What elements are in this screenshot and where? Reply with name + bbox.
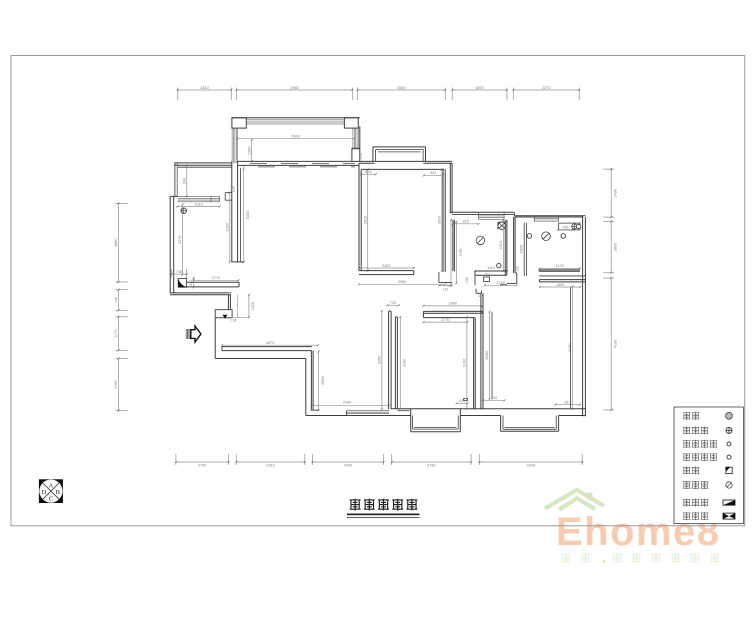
svg-text:120: 120 xyxy=(447,284,453,288)
svg-text:1790: 1790 xyxy=(198,464,206,468)
svg-text:2805: 2805 xyxy=(613,243,617,251)
svg-text:1890: 1890 xyxy=(475,86,483,90)
svg-text:811: 811 xyxy=(430,171,436,175)
svg-text:824: 824 xyxy=(365,170,371,174)
svg-text:B: B xyxy=(56,489,61,496)
svg-text:1020: 1020 xyxy=(251,302,255,310)
svg-text:131: 131 xyxy=(359,153,363,159)
svg-text:1.60: 1.60 xyxy=(230,319,237,323)
svg-text:261: 261 xyxy=(189,279,193,285)
svg-text:2430: 2430 xyxy=(343,401,351,405)
svg-text:2760: 2760 xyxy=(114,380,118,388)
svg-text:3280: 3280 xyxy=(485,351,489,359)
svg-text:730: 730 xyxy=(491,396,497,400)
svg-text:140: 140 xyxy=(114,297,118,303)
svg-text:2430: 2430 xyxy=(344,464,352,468)
svg-text:817: 817 xyxy=(565,401,571,405)
svg-text:3240: 3240 xyxy=(527,464,535,468)
svg-text:2420: 2420 xyxy=(382,264,390,268)
svg-text:2960: 2960 xyxy=(398,280,406,284)
svg-text:2275: 2275 xyxy=(178,235,182,243)
svg-text:2670: 2670 xyxy=(438,216,442,224)
svg-text:D: D xyxy=(42,489,47,496)
svg-text:1110: 1110 xyxy=(487,266,494,270)
svg-text:2805: 2805 xyxy=(520,245,524,253)
svg-text:120: 120 xyxy=(443,288,449,292)
svg-text:1910: 1910 xyxy=(499,241,503,249)
svg-text:1390: 1390 xyxy=(556,283,564,287)
svg-text:2600: 2600 xyxy=(397,86,405,90)
svg-text:3030: 3030 xyxy=(246,211,250,219)
svg-text:130: 130 xyxy=(232,186,236,192)
svg-text:425: 425 xyxy=(459,399,465,403)
svg-text:2000: 2000 xyxy=(321,376,325,384)
svg-text:4130: 4130 xyxy=(613,340,617,348)
svg-text:A: A xyxy=(49,483,54,490)
svg-text:2673: 2673 xyxy=(266,341,274,345)
svg-text:3100: 3100 xyxy=(463,359,467,367)
svg-text:740: 740 xyxy=(562,225,568,229)
svg-text:990: 990 xyxy=(182,178,186,184)
svg-text:2610: 2610 xyxy=(363,216,367,224)
svg-text:1810: 1810 xyxy=(200,86,208,90)
svg-text:2960: 2960 xyxy=(290,86,298,90)
svg-text:2270: 2270 xyxy=(542,86,550,90)
svg-text:135: 135 xyxy=(465,277,469,283)
svg-text:915: 915 xyxy=(463,220,469,224)
svg-text:2000: 2000 xyxy=(449,302,457,306)
svg-text:2730: 2730 xyxy=(427,464,435,468)
svg-text:1280: 1280 xyxy=(247,146,251,154)
svg-text:1010: 1010 xyxy=(194,202,202,206)
svg-text:1770: 1770 xyxy=(441,318,449,322)
svg-text:748: 748 xyxy=(176,270,182,274)
svg-text:2880: 2880 xyxy=(114,238,118,246)
svg-text:725: 725 xyxy=(390,301,396,305)
svg-text:110: 110 xyxy=(515,266,519,272)
svg-text:1170: 1170 xyxy=(114,329,118,337)
svg-text:1770: 1770 xyxy=(212,276,220,280)
svg-text:C: C xyxy=(49,496,53,503)
svg-text:2310: 2310 xyxy=(266,464,274,468)
svg-text:2960: 2960 xyxy=(291,135,299,139)
svg-text:3390: 3390 xyxy=(378,356,382,364)
svg-text:2000: 2000 xyxy=(225,223,229,231)
svg-text:3100: 3100 xyxy=(403,359,407,367)
svg-text:120: 120 xyxy=(478,294,484,298)
svg-text:110: 110 xyxy=(485,273,490,277)
svg-text:1170: 1170 xyxy=(556,264,564,268)
svg-text:2430: 2430 xyxy=(613,189,617,197)
svg-text:1130: 1130 xyxy=(459,249,463,257)
